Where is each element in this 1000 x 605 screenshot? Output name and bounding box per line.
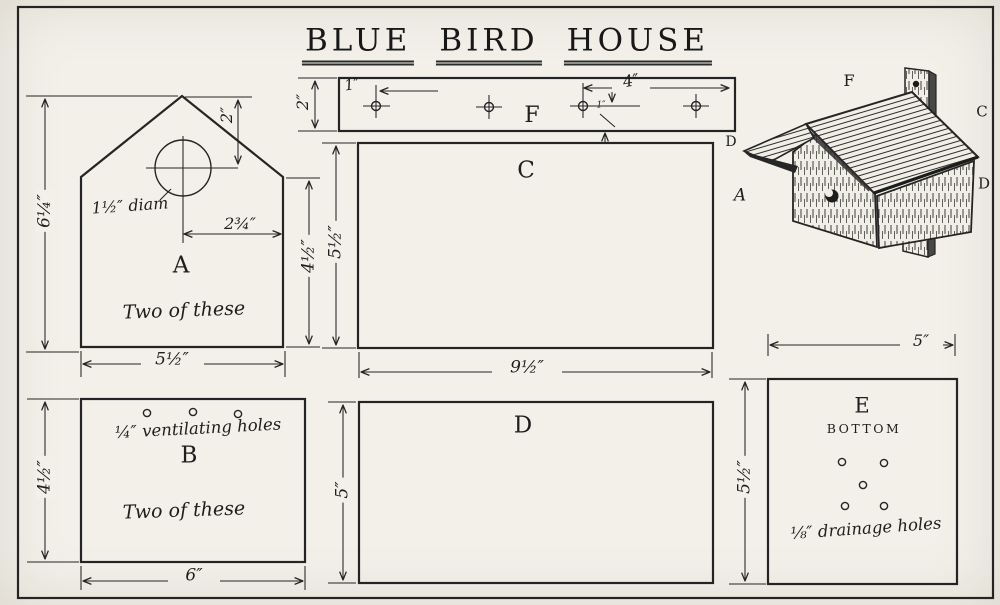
dim-a-offset: 2¾″ (224, 216, 256, 232)
assembly-label-front: A (734, 188, 746, 205)
dim-f-edge: 1″ (596, 102, 605, 111)
dim-a-left: 6¼″ (36, 190, 55, 232)
dim-a-top: 2″ (219, 107, 235, 123)
dim-f-width: 2″ (295, 94, 311, 110)
page-title: BLUE BIRD HOUSE (302, 23, 712, 66)
dim-e-left: 5½″ (736, 456, 755, 498)
part-a-letter: A (173, 255, 190, 278)
part-e-letter: E (854, 396, 869, 417)
dim-c-bottom: 9½″ (510, 360, 544, 377)
part-a-note: Two of these (123, 299, 246, 322)
dim-d-left: 5″ (334, 477, 353, 502)
dim-c-left: 5½″ (327, 221, 346, 263)
title-word: HOUSE (564, 23, 712, 66)
title-word: BIRD (436, 23, 541, 66)
part-d-letter: D (514, 415, 532, 438)
title-word: BLUE (302, 23, 414, 66)
dim-a-bottom: 5½″ (155, 352, 189, 369)
dim-a-right: 4½″ (300, 235, 319, 277)
part-c-letter: C (517, 160, 535, 183)
assembly-label-overhang: D (725, 135, 736, 149)
assembly-label-roof: F (843, 73, 854, 89)
blueprint-page: .o{fill:none;stroke:#242424;stroke-width… (0, 0, 1000, 605)
assembly-label-side: C (976, 105, 987, 120)
assembly-label-front-edge: D (978, 177, 990, 192)
dim-b-bottom: 6″ (185, 568, 202, 585)
part-f-drawing (298, 78, 735, 144)
dim-f-end-span: 4″ (622, 72, 641, 91)
part-f-letter: F (524, 105, 539, 127)
assembled-view (744, 68, 978, 257)
dim-e-top: 5″ (913, 333, 929, 349)
part-b-letter: B (181, 445, 198, 468)
dim-b-left: 4½″ (36, 456, 55, 498)
part-e-drawing (729, 334, 957, 584)
part-e-caption: BOTTOM (827, 423, 902, 436)
part-b-note: Two of these (123, 499, 246, 522)
dim-f-first-hole: 1″ (343, 77, 360, 94)
part-a-drawing (26, 96, 320, 377)
